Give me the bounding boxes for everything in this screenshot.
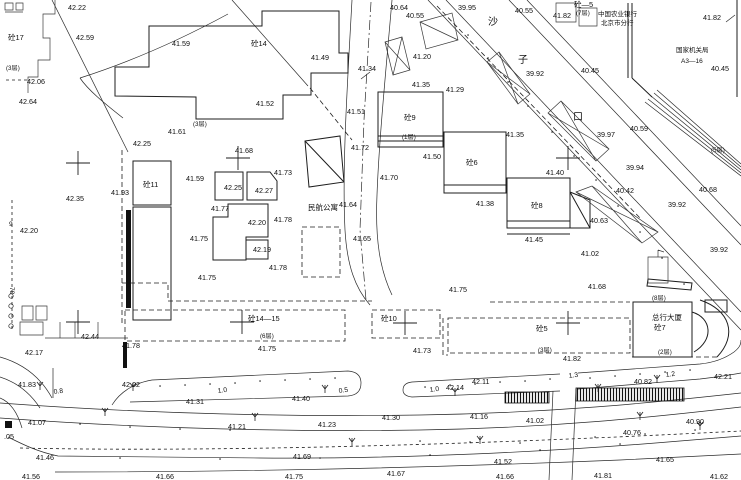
hatched-wall-2: [576, 388, 684, 401]
street-name-chars-1: 子: [518, 54, 528, 66]
road-widths-4: 1.3: [568, 372, 579, 380]
spot-elevations-37: 42.25: [224, 183, 242, 192]
boundaries-layer: [12, 6, 719, 357]
road-widths-3: 1.0: [429, 386, 440, 394]
spot-elevations-65: 41.21: [228, 422, 246, 431]
utility-block: [5, 421, 12, 428]
walls-layer: [505, 388, 684, 403]
spot-elevations-88: 41.67: [387, 469, 405, 478]
spot-elevations-13: 41.35: [412, 80, 430, 89]
spot-elevations-17: 41.72: [351, 143, 369, 152]
place-names-0: 民航公寓: [308, 202, 338, 212]
street-name-chars-2: 口: [573, 112, 583, 123]
spot-elevations-9: 39.95: [458, 3, 476, 12]
spot-elevations-47: 41.75: [198, 273, 216, 282]
road-widths-5: 1.2: [665, 371, 676, 379]
spot-elevations-91: 41.62: [710, 472, 728, 480]
shrub-symbol: [9, 314, 13, 318]
floor-notes-8: (8层): [652, 295, 666, 302]
spot-elevations-46: 41.75: [190, 234, 208, 243]
spot-elevations-8: 40.55: [406, 11, 424, 20]
building-labels-9: 砼7: [654, 322, 666, 332]
road-edge: [232, 0, 308, 86]
tree-symbol: [654, 375, 660, 383]
spot-elevations-50: 41.70: [380, 173, 398, 182]
spot-elevations-62: 42.02: [122, 380, 140, 389]
spot-elevations-73: 41.30: [382, 413, 400, 422]
building-11-wall: [126, 210, 131, 308]
spot-elevations-68: 41.75: [258, 344, 276, 353]
small-names-0: 中国农业银行: [598, 9, 638, 18]
corner-symbol: [5, 3, 23, 12]
spot-elevations-43: 41.78: [274, 215, 292, 224]
building-labels-5: 砼8: [531, 200, 543, 210]
building-labels-1: 砼14: [251, 38, 267, 48]
spot-elevations-3: 42.06: [27, 77, 45, 86]
floor-notes-4: (5层): [711, 147, 725, 154]
building-minhang: [305, 136, 344, 187]
spot-elevations-70: 42.11: [472, 377, 489, 386]
spot-elevations-56: 41.68: [588, 282, 606, 291]
shed-b: [420, 13, 458, 49]
building-labels-4: 砼6: [466, 157, 478, 167]
building-labels-8: 砼5: [536, 323, 548, 333]
spot-elevations-38: 42.27: [255, 186, 273, 195]
spot-elevations-27: 41.35: [506, 130, 524, 139]
floor-notes-7: (2层): [658, 349, 672, 356]
spot-elevations-78: 42.21: [714, 372, 732, 381]
spot-elevations-24: 40.45: [711, 64, 729, 73]
spot-elevations-39: 41.68: [235, 146, 253, 155]
spot-elevations-77: 41.82: [563, 354, 581, 363]
road-contour: [80, 78, 123, 118]
rail-lines: [645, 90, 741, 176]
spot-elevations-23: 40.45: [581, 66, 599, 75]
spot-elevations-2: 41.59: [172, 39, 190, 48]
building-labels-0: 砼17: [8, 32, 24, 42]
road-widths-0: 0.8: [53, 388, 64, 396]
spot-elevations-58: 42.44: [81, 332, 99, 341]
misc-0: 9: [9, 221, 13, 228]
misc-1: 78: [8, 287, 15, 295]
road-widths-1: 1.0: [217, 387, 228, 395]
spot-elevations-69: 41.73: [413, 346, 431, 355]
spot-elevations-19: 40.55: [515, 6, 533, 15]
hatched-wall-1: [505, 392, 549, 403]
shrub-symbol: [9, 304, 13, 308]
spot-elevations-84: 41.65: [656, 455, 674, 464]
spot-elevations-34: 42.20: [20, 226, 38, 235]
spot-elevations-1: 42.59: [76, 33, 94, 42]
spot-elevations-72: 41.40: [292, 394, 310, 403]
spot-elevations-35: 41.93: [111, 188, 129, 197]
spot-elevations-54: 41.45: [525, 235, 543, 244]
spot-elevations-71: 42.14: [446, 383, 464, 392]
spot-elevations-83: 41.52: [494, 457, 512, 466]
spot-elevations-81: 40.90: [686, 417, 704, 426]
building-labels-10: 砼—5: [574, 0, 593, 9]
vertical-road: [549, 389, 576, 480]
street-edge-west: [344, 0, 370, 305]
spot-elevations-25: 40.59: [630, 124, 648, 133]
tree-symbol: [637, 412, 643, 420]
building-labels-6: 砼14—15: [248, 313, 280, 323]
spot-elevations-14: 41.29: [446, 85, 464, 94]
spot-elevations-52: 41.38: [476, 199, 494, 208]
building-8: [507, 178, 590, 234]
spot-elevations-33: 42.35: [66, 194, 84, 203]
floor-notes-6: (3层): [538, 347, 552, 354]
shed-a: [385, 37, 410, 75]
building-labels-2: 砼9: [404, 112, 416, 122]
spot-elevations-6: 42.25: [133, 139, 151, 148]
spot-elevations-63: 41.31: [186, 397, 204, 406]
shrub-symbol: [9, 294, 13, 298]
spot-elevations-28: 39.94: [626, 163, 644, 172]
spot-elevations-32: 39.92: [710, 245, 728, 254]
spot-elevations-40: 41.73: [274, 168, 292, 177]
sidewalk-band-1: [112, 371, 361, 405]
spot-elevations-59: 42.17: [25, 348, 43, 357]
spot-elevations-76: 41.69: [293, 452, 311, 461]
spot-elevations-11: 41.20: [413, 52, 431, 61]
small-names-2: 国家机关局: [676, 45, 709, 54]
spot-elevations-64: 41.07: [28, 418, 46, 427]
spot-elevations-15: 41.52: [256, 99, 274, 108]
tree-symbol: [37, 382, 43, 390]
road-edge: [52, 0, 128, 152]
spot-elevations-51: 41.40: [546, 168, 564, 177]
road-contour: [80, 14, 228, 78]
floor-notes-5: (6层): [260, 333, 274, 340]
spot-elevations-29: 40.42: [616, 186, 634, 195]
building-14: [115, 11, 348, 119]
spot-elevations-80: 41.02: [526, 416, 544, 425]
spot-elevations-44: 42.19: [253, 245, 271, 254]
spot-elevations-42: 42.20: [248, 218, 266, 227]
diag-street-dashed: [437, 6, 640, 218]
small-names-1: 北京市分行: [601, 18, 634, 27]
place-names-1: 总行大厦: [652, 312, 682, 322]
spot-elevations-22: 39.92: [526, 69, 544, 78]
floor-notes-3: (7层): [576, 10, 590, 17]
spot-elevations-20: 41.82: [553, 11, 571, 20]
road-widths-2: 0.5: [338, 387, 349, 395]
spot-elevations-16: 41.51: [347, 107, 365, 116]
small-building-east: [648, 250, 668, 283]
floor-notes-1: (3层): [193, 121, 207, 128]
site-plan: 42.2242.5941.5942.0642.6441.6142.2540.64…: [0, 0, 741, 480]
spot-elevations-87: 41.75: [285, 472, 303, 480]
spot-elevations-12: 41.34: [358, 64, 376, 73]
spot-elevations-18: 41.50: [423, 152, 441, 161]
spot-elevations-10: 41.49: [311, 53, 329, 62]
spot-elevations-85: 41.56: [22, 472, 40, 480]
spot-elevations-4: 42.64: [19, 97, 37, 106]
small-names-3: A3—16: [681, 58, 703, 65]
sidewalk-band-3: [578, 340, 741, 389]
spot-elevations-89: 41.66: [496, 472, 514, 480]
road-edge-long-3: [8, 436, 741, 458]
spot-elevations-66: .05: [4, 432, 14, 441]
tree-symbol: [322, 385, 328, 393]
building-labels-3: 砼11: [143, 179, 158, 189]
spot-elevations-41: 41.77: [211, 204, 229, 213]
spot-elevations-82: 40.76: [623, 428, 641, 437]
spot-elevations-61: 41.83: [18, 380, 36, 389]
spot-elevations-31: 39.92: [668, 200, 686, 209]
floor-notes-2: (1层): [402, 134, 416, 141]
spot-elevations-90: 41.81: [594, 471, 612, 480]
spot-elevations-86: 41.66: [156, 472, 174, 480]
spot-elevations-60: 41.78: [122, 341, 140, 350]
grid-cross: [66, 146, 580, 335]
spot-elevations-26: 39.97: [597, 130, 615, 139]
shrub-symbol: [9, 324, 13, 328]
spot-elevations-21: 41.82: [703, 13, 721, 22]
spot-elevations-74: 41.16: [470, 412, 488, 421]
spot-elevations-30: 40.68: [699, 185, 717, 194]
spot-elevations-67: 41.46: [36, 453, 54, 462]
spot-elevations-45: 41.78: [269, 263, 287, 272]
spot-elevations-49: 41.65: [353, 234, 371, 243]
tree-symbol: [349, 438, 355, 446]
tree-symbol: [102, 408, 108, 416]
floor-notes-0: (3层): [6, 65, 20, 72]
spot-elevations-36: 41.59: [186, 174, 204, 183]
spot-elevations-75: 41.23: [318, 420, 336, 429]
spot-elevations-57: 41.75: [449, 285, 467, 294]
tree-symbol: [252, 413, 258, 421]
spot-elevations-53: 40.63: [590, 216, 608, 225]
spot-elevations-79: 40.82: [634, 377, 652, 386]
street-name-chars-0: 沙: [488, 16, 498, 28]
dashed-building: [302, 227, 340, 277]
spot-elevations-55: 41.02: [581, 249, 599, 258]
spot-elevations-5: 41.61: [168, 127, 186, 136]
spot-elevations-0: 42.22: [68, 3, 86, 12]
site-plan-canvas: 42.2242.5941.5942.0642.6441.6142.2540.64…: [0, 0, 741, 480]
labels-layer: 42.2242.5941.5942.0642.6441.6142.2540.64…: [4, 0, 732, 480]
building-labels-7: 砼10: [381, 313, 397, 323]
spot-elevations-48: 41.64: [339, 200, 357, 209]
